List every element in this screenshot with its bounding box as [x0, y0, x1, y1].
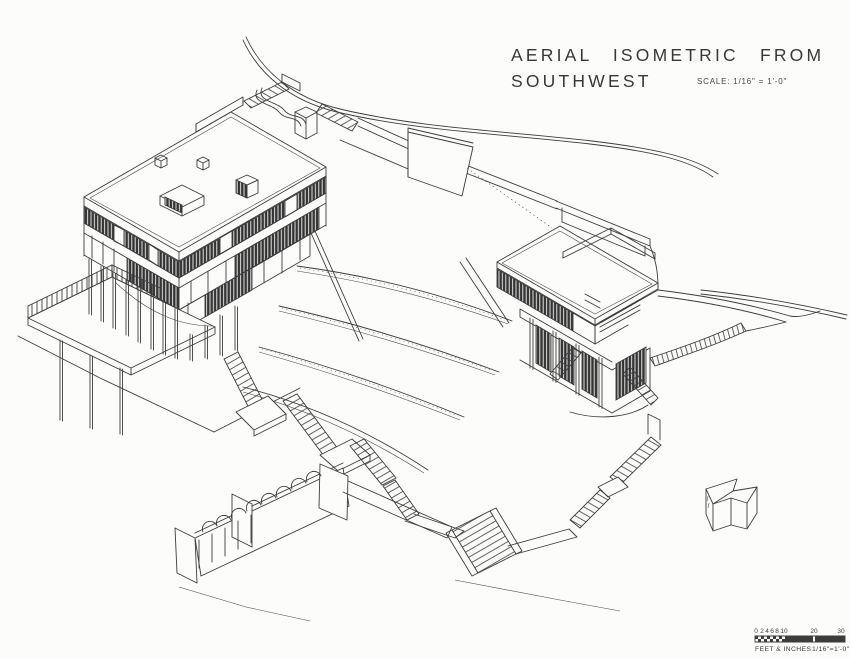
scale-units-label: FEET & INCHES: [755, 646, 812, 653]
ground-line: [179, 587, 310, 621]
pergola-end-panel: [175, 528, 197, 583]
drawing-title-line1: AERIAL ISOMETRIC FROM: [511, 45, 824, 65]
scale-bar-graphic: [755, 636, 845, 642]
walkway: [508, 529, 577, 554]
scale-ratio-label: 1/16"=1'-0": [812, 646, 850, 653]
wall-pier: [149, 244, 158, 266]
garden-stair-route-east: [570, 414, 661, 528]
curved-stepped-wall: [650, 323, 746, 366]
garden-level-glazing: [205, 268, 252, 317]
guest-pavilion: [497, 226, 820, 417]
ground-line: [455, 580, 620, 611]
scale-tick: 0: [754, 628, 758, 635]
curved-garden-wall: [658, 290, 790, 316]
drawing-title-line2: SOUTHWEST: [511, 71, 652, 91]
scale-note: SCALE: 1/16" = 1'-0": [697, 77, 787, 86]
wide-stair: [452, 511, 516, 573]
north-arrow: [706, 479, 757, 531]
drawing-sheet: AERIAL ISOMETRIC FROM SOUTHWEST SCALE: 1…: [0, 0, 850, 659]
terrace-arc-stipple: [282, 308, 493, 371]
scale-tick: 4: [765, 628, 769, 635]
garden-stair-route-west: [224, 352, 577, 576]
scale-tick: 8: [775, 628, 779, 635]
terrace-arc: [297, 271, 508, 324]
lower-glazing: [536, 325, 551, 372]
stair-tower-top: [295, 107, 317, 118]
terrace-arc: [279, 311, 495, 375]
graphic-scale-bar: 0 2 4 6 8 10 20 30 FEET & INCHES 1/16"=1…: [754, 628, 850, 653]
hillside-cut: [311, 233, 359, 341]
scale-tick: 2: [760, 628, 764, 635]
scale-tick: 30: [837, 628, 845, 635]
corner-wall: [648, 414, 660, 440]
curved-garden-terraces: [243, 266, 512, 473]
isometric-drawing: AERIAL ISOMETRIC FROM SOUTHWEST SCALE: 1…: [0, 0, 850, 659]
north-arrow-hatch: [707, 496, 709, 508]
scale-tick: 10: [780, 628, 788, 635]
slope-stipple: [467, 168, 552, 228]
title-block: AERIAL ISOMETRIC FROM SOUTHWEST SCALE: 1…: [511, 45, 824, 91]
terrace-deck: [28, 277, 215, 368]
stair-landing: [236, 396, 286, 430]
stair-flight: [570, 490, 610, 528]
retaining-wall: [408, 132, 473, 196]
wall-pier: [573, 313, 595, 344]
lower-glazing: [582, 351, 597, 398]
scale-tick: 6: [770, 628, 774, 635]
scale-tick: 20: [810, 628, 818, 635]
